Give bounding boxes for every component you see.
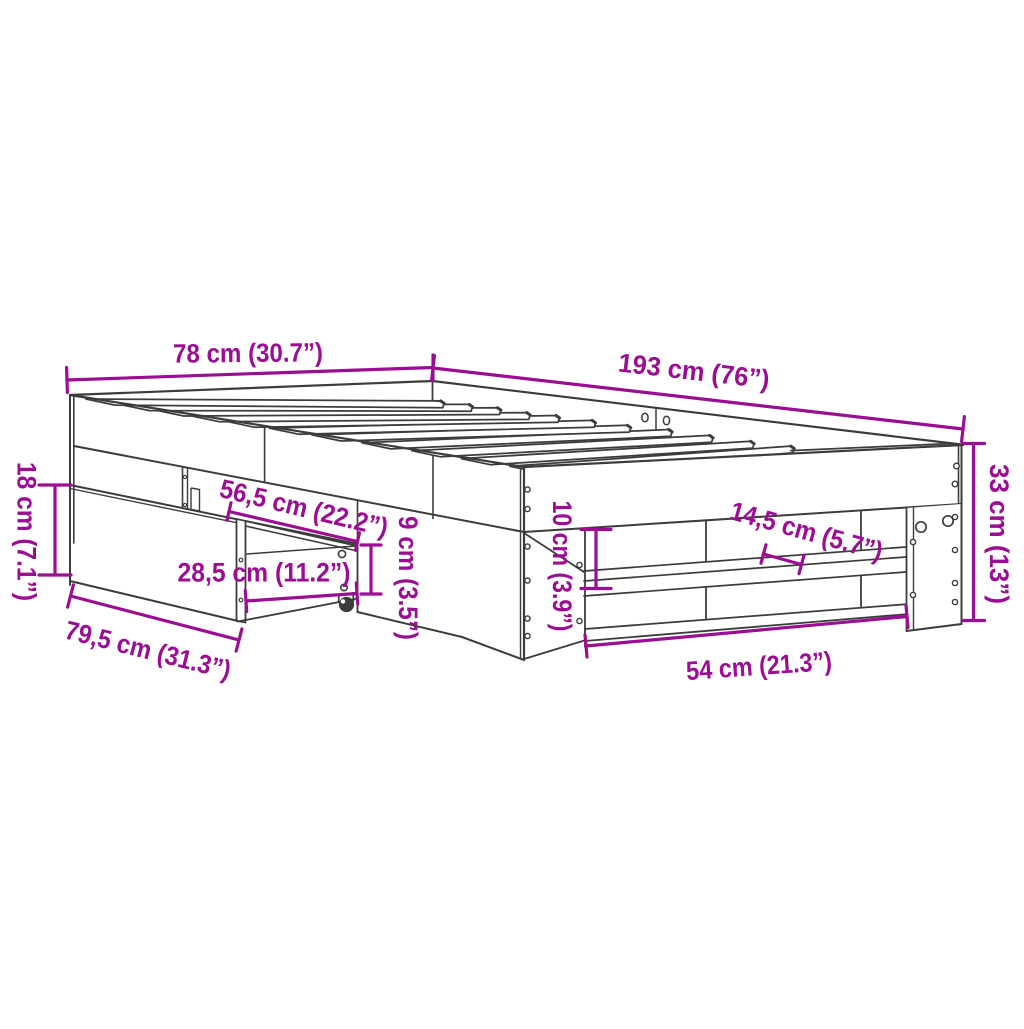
svg-text:9 cm (3.5”): 9 cm (3.5”) [393,516,423,640]
svg-text:78 cm (30.7”): 78 cm (30.7”) [173,337,323,368]
svg-text:10 cm (3.9”): 10 cm (3.9”) [547,501,577,632]
svg-text:33 cm (13”): 33 cm (13”) [984,464,1014,604]
svg-text:28,5 cm (11.2”): 28,5 cm (11.2”) [178,558,351,588]
svg-text:18 cm (7.1”): 18 cm (7.1”) [12,462,42,601]
